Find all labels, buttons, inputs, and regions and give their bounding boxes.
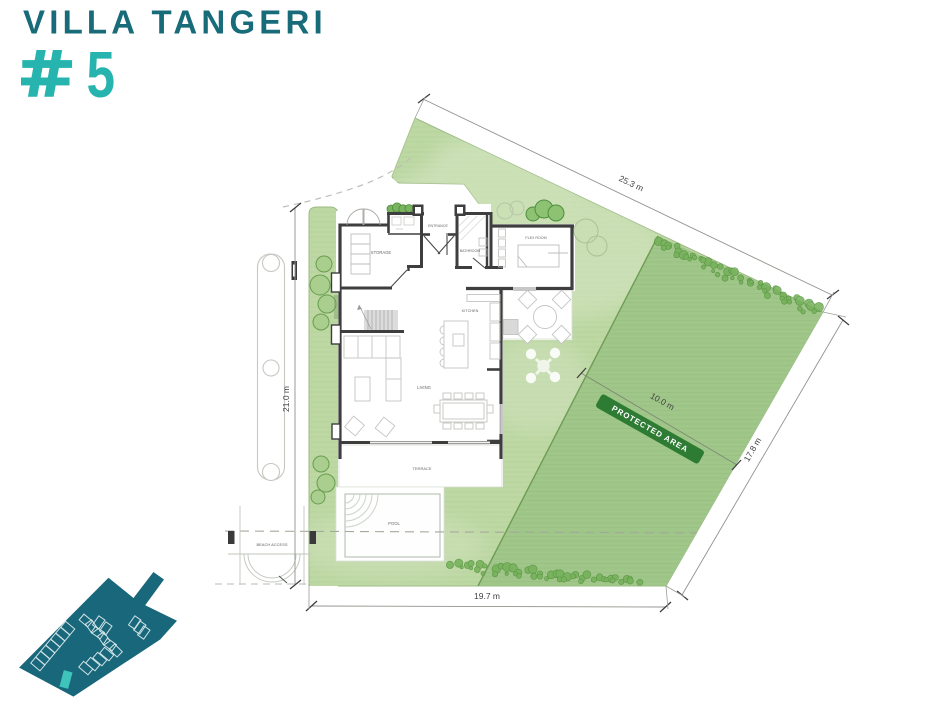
svg-text:POOL: POOL (388, 521, 400, 526)
svg-text:5: 5 (87, 39, 116, 111)
svg-text:LIVING: LIVING (417, 385, 431, 390)
svg-text:BATHROOM: BATHROOM (460, 249, 481, 253)
svg-text:ENTRANCE: ENTRANCE (428, 224, 448, 228)
svg-text:KITCHEN: KITCHEN (462, 309, 479, 313)
svg-text:VILLA TANGERI: VILLA TANGERI (23, 4, 327, 41)
svg-text:TERRACE: TERRACE (412, 466, 431, 471)
svg-text:19.7 m: 19.7 m (474, 591, 500, 601)
svg-text:BEACH ACCESS: BEACH ACCESS (256, 542, 287, 547)
svg-text:21.0 m: 21.0 m (281, 386, 291, 412)
svg-text:STORAGE: STORAGE (371, 250, 392, 255)
svg-text:FLEX ROOM: FLEX ROOM (525, 236, 546, 240)
